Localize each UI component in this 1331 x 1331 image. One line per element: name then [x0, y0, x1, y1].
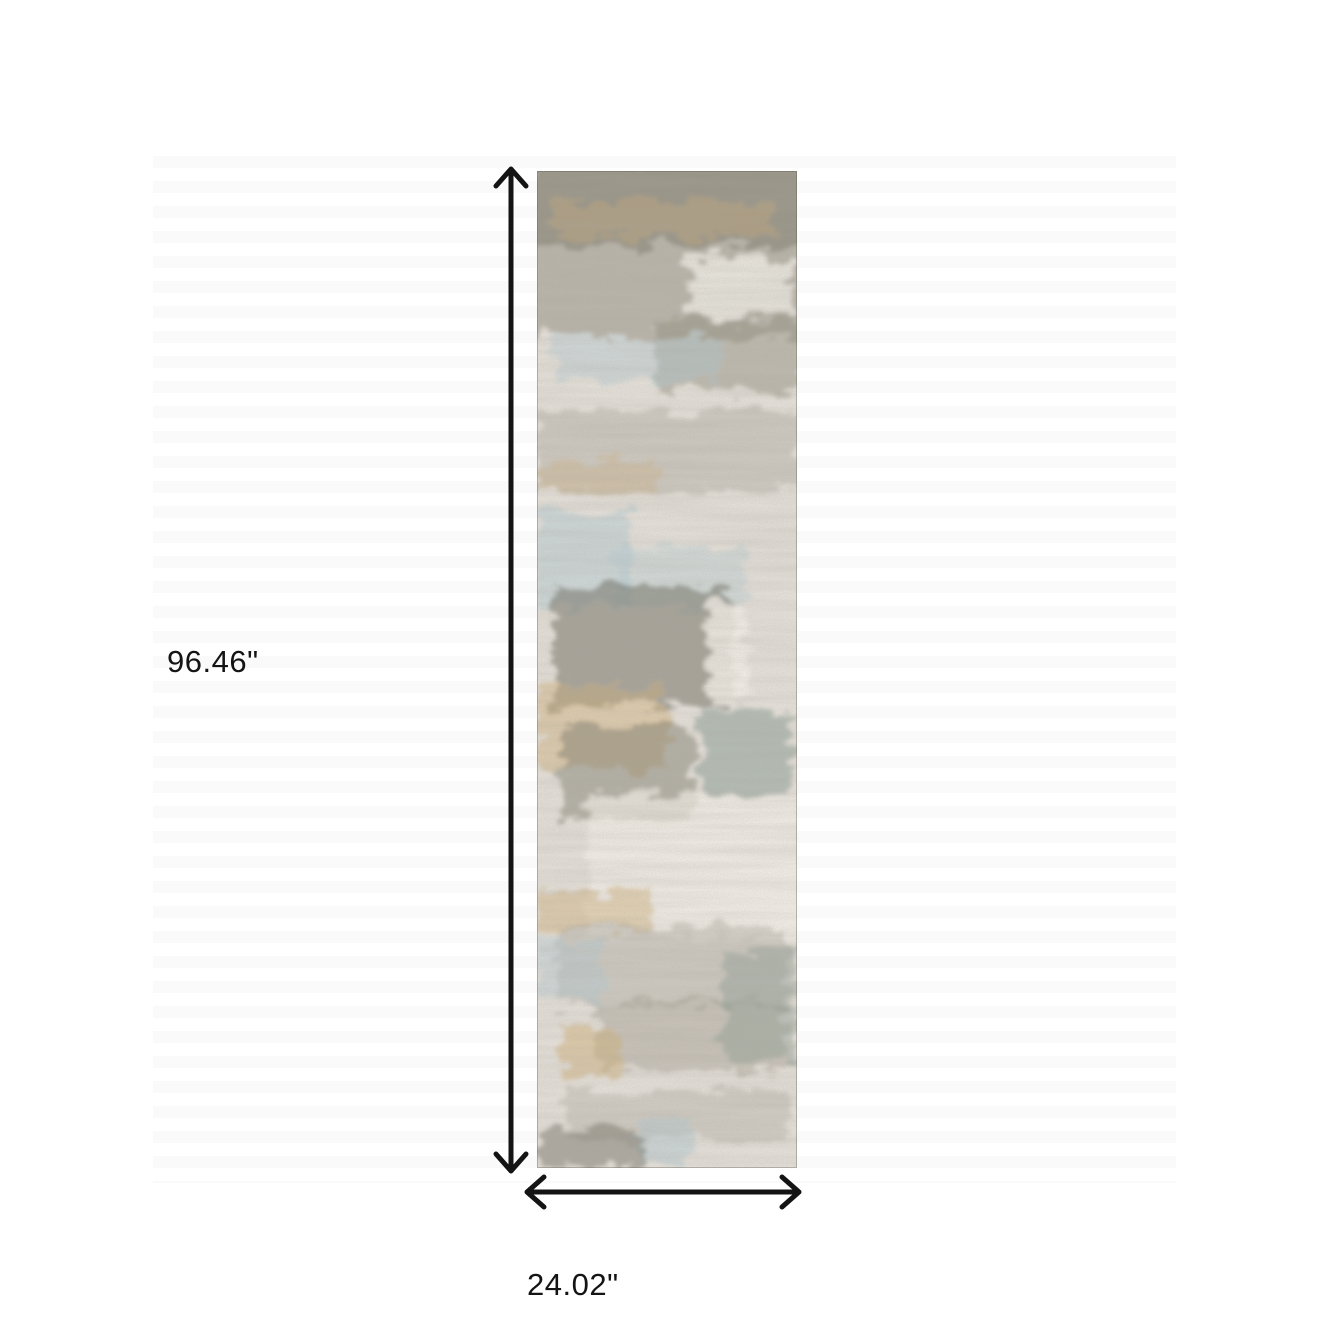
rug-image [537, 171, 797, 1168]
height-dimension-label: 96.46" [167, 645, 259, 679]
width-dimension-arrow [522, 1172, 804, 1212]
rug-texture-svg [537, 171, 797, 1168]
height-dimension-arrow [490, 162, 532, 1178]
width-dimension-label: 24.02" [527, 1268, 619, 1302]
rug-grain-overlay [537, 171, 797, 1168]
product-dimension-figure: 96.46" 24.02" [0, 0, 1331, 1331]
